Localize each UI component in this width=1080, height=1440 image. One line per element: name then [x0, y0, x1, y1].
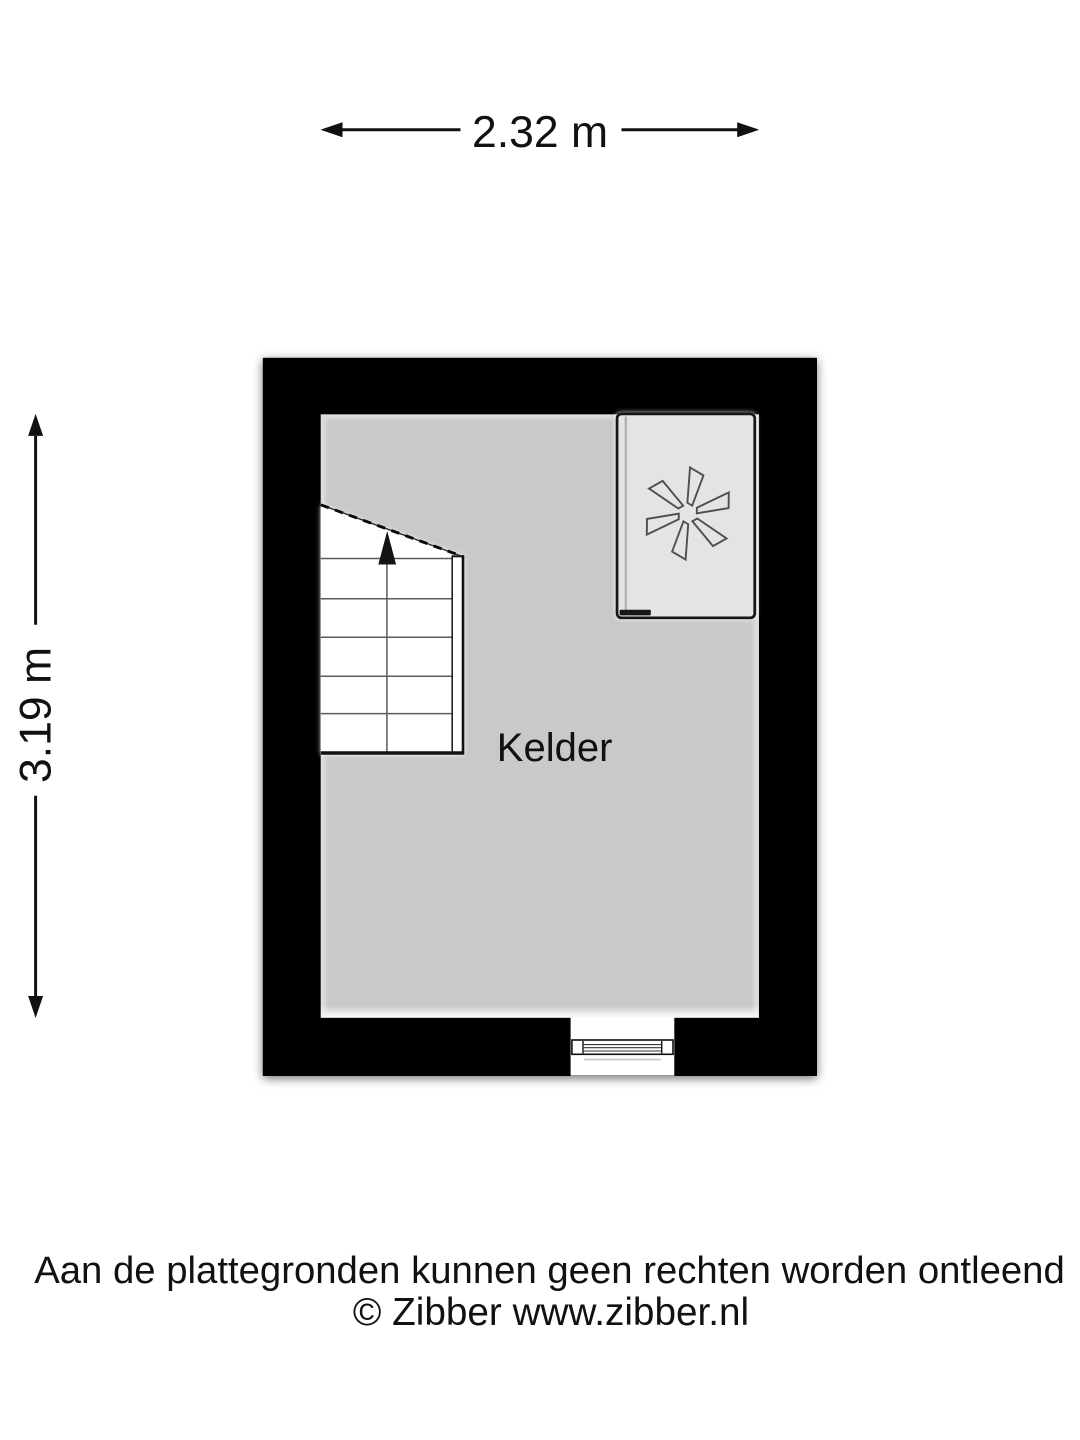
- svg-text:2.32 m: 2.32 m: [472, 108, 608, 157]
- svg-text:Aan de plattegronden kunnen ge: Aan de plattegronden kunnen geen rechten…: [34, 1249, 1065, 1292]
- svg-text:Kelder: Kelder: [497, 726, 613, 770]
- svg-text:3.19 m: 3.19 m: [12, 647, 61, 783]
- svg-text:© Zibber www.zibber.nl: © Zibber www.zibber.nl: [353, 1291, 749, 1334]
